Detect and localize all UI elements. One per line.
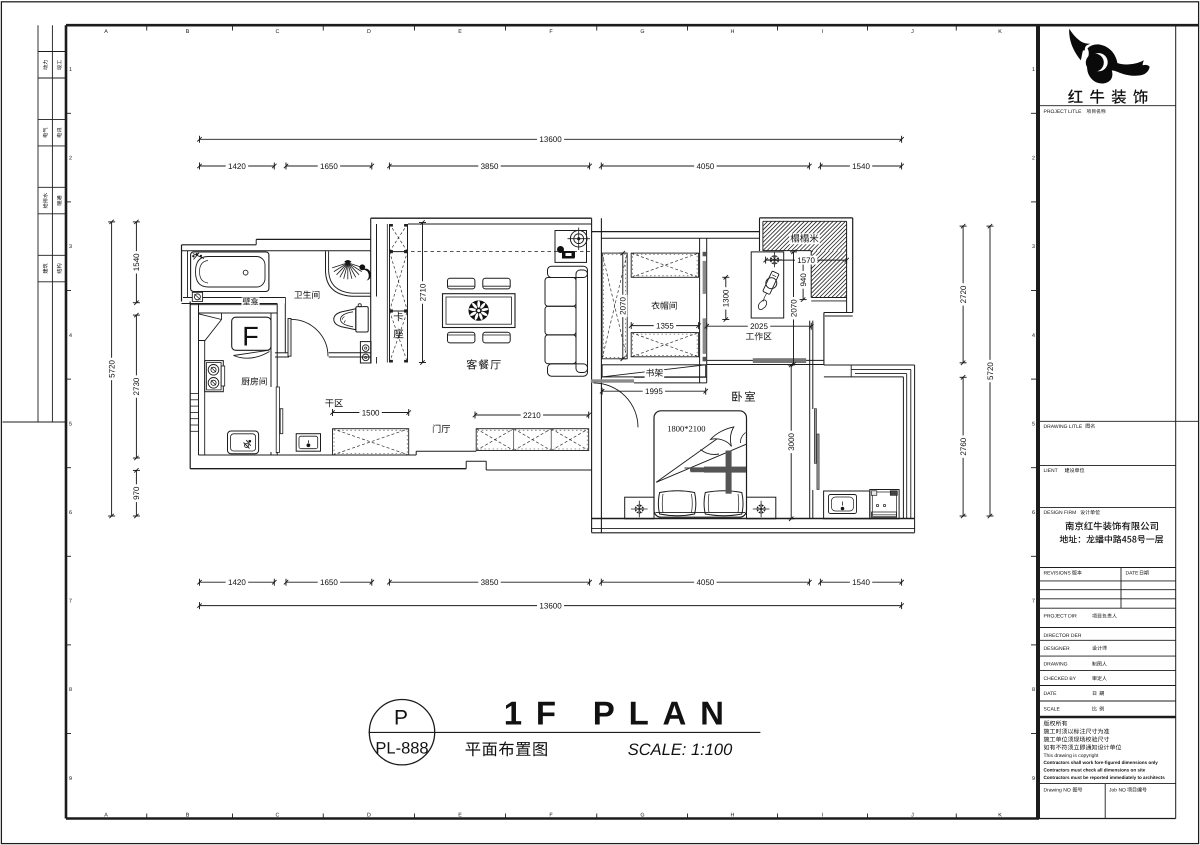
svg-text:970: 970 [132, 486, 141, 500]
svg-text:CHECKED BY: CHECKED BY [1044, 676, 1077, 682]
svg-text:DESIGN FIRM: DESIGN FIRM [1044, 510, 1077, 516]
svg-text:J: J [911, 812, 914, 818]
svg-text:4: 4 [1032, 333, 1035, 339]
svg-text:Drawing NO: Drawing NO [1044, 788, 1071, 794]
svg-text:C: C [276, 29, 280, 35]
svg-text:3000: 3000 [787, 432, 796, 450]
svg-text:DATE: DATE [1126, 571, 1140, 577]
svg-text:2710: 2710 [418, 283, 427, 301]
svg-text:5: 5 [69, 421, 72, 427]
svg-text:5720: 5720 [986, 362, 995, 380]
svg-text:5: 5 [1032, 421, 1035, 427]
svg-text:H: H [731, 812, 735, 818]
svg-text:PROJECT LITLE: PROJECT LITLE [1044, 109, 1083, 115]
svg-text:1420: 1420 [228, 578, 246, 587]
svg-text:Contractors must be reported i: Contractors must be reported immediately… [1044, 775, 1166, 780]
svg-text:4050: 4050 [696, 578, 714, 587]
svg-text:1540: 1540 [852, 578, 870, 587]
svg-text:D: D [367, 29, 371, 35]
svg-text:13600: 13600 [539, 601, 562, 610]
svg-text:2: 2 [69, 156, 72, 162]
svg-text:H: H [731, 29, 735, 35]
svg-text:1420: 1420 [228, 162, 246, 171]
svg-text:6: 6 [69, 510, 72, 516]
svg-text:2025: 2025 [750, 322, 768, 331]
svg-text:G: G [640, 812, 644, 818]
svg-text:2720: 2720 [959, 285, 968, 303]
svg-text:1300: 1300 [722, 289, 731, 307]
svg-text:Contractors must check all dim: Contractors must check all dimensions on… [1044, 768, 1146, 773]
svg-text:K: K [998, 29, 1002, 35]
svg-text:A: A [104, 29, 108, 35]
svg-text:P: P [394, 707, 408, 730]
svg-text:3850: 3850 [481, 578, 499, 587]
svg-text:1800*2100: 1800*2100 [667, 423, 705, 433]
svg-text:2210: 2210 [523, 411, 541, 420]
svg-text:LIENT: LIENT [1044, 468, 1058, 474]
svg-text:1540: 1540 [852, 162, 870, 171]
svg-text:A: A [104, 812, 108, 818]
svg-text:I: I [822, 29, 824, 35]
svg-text:8: 8 [1032, 687, 1035, 693]
svg-text:Contractors shall work fore-fi: Contractors shall work fore-figured dime… [1044, 760, 1159, 765]
svg-text:K: K [998, 812, 1002, 818]
svg-text:C: C [276, 812, 280, 818]
svg-text:5720: 5720 [107, 360, 116, 378]
svg-text:2070: 2070 [789, 299, 798, 317]
svg-text:3850: 3850 [481, 162, 499, 171]
svg-text:PL-888: PL-888 [375, 740, 428, 758]
svg-text:4050: 4050 [696, 162, 714, 171]
svg-text:SCALE: 1:100: SCALE: 1:100 [628, 741, 733, 759]
svg-text:2070: 2070 [619, 297, 628, 315]
svg-text:G: G [640, 29, 644, 35]
svg-text:DRAWING: DRAWING [1044, 662, 1068, 668]
svg-text:4: 4 [69, 333, 72, 339]
svg-text:DIRECTOR DER: DIRECTOR DER [1044, 633, 1082, 639]
svg-text:1: 1 [1032, 67, 1035, 73]
svg-text:DESIGNER: DESIGNER [1044, 646, 1071, 652]
svg-text:DRAWING LITLE: DRAWING LITLE [1044, 424, 1083, 430]
svg-text:1540: 1540 [132, 253, 141, 271]
svg-text:SCALE: SCALE [1044, 707, 1061, 713]
svg-text:940: 940 [799, 273, 808, 287]
svg-text:E: E [458, 812, 462, 818]
svg-text:I: I [822, 812, 824, 818]
svg-text:PROJECT DIR: PROJECT DIR [1044, 614, 1078, 620]
svg-text:D: D [367, 812, 371, 818]
svg-text:2760: 2760 [959, 437, 968, 455]
svg-text:1995: 1995 [645, 387, 663, 396]
svg-text:J: J [911, 29, 914, 35]
svg-text:DATE: DATE [1044, 691, 1058, 697]
svg-text:7: 7 [1032, 599, 1035, 605]
svg-text:1F PLAN: 1F PLAN [504, 695, 738, 732]
svg-text:6: 6 [1032, 510, 1035, 516]
svg-text:1500: 1500 [362, 408, 380, 417]
svg-text:1: 1 [69, 67, 72, 73]
svg-text:3: 3 [69, 244, 72, 250]
svg-text:7: 7 [69, 599, 72, 605]
svg-text:B: B [186, 812, 190, 818]
svg-text:This drawing is copyright: This drawing is copyright [1044, 753, 1100, 759]
svg-text:13600: 13600 [539, 135, 562, 144]
svg-text:B: B [186, 29, 190, 35]
svg-text:8: 8 [69, 687, 72, 693]
svg-text:3: 3 [1032, 244, 1035, 250]
svg-text:9: 9 [1032, 776, 1035, 782]
svg-text:2730: 2730 [132, 377, 141, 395]
svg-text:2: 2 [1032, 156, 1035, 162]
svg-text:F: F [242, 322, 259, 352]
svg-text:1570: 1570 [797, 256, 815, 265]
svg-text:Job NO: Job NO [1109, 788, 1126, 794]
svg-text:1650: 1650 [320, 162, 338, 171]
svg-text:REVISIONS: REVISIONS [1044, 571, 1072, 577]
svg-text:1355: 1355 [656, 321, 674, 330]
svg-text:E: E [458, 29, 462, 35]
svg-text:9: 9 [69, 776, 72, 782]
svg-text:1650: 1650 [320, 578, 338, 587]
